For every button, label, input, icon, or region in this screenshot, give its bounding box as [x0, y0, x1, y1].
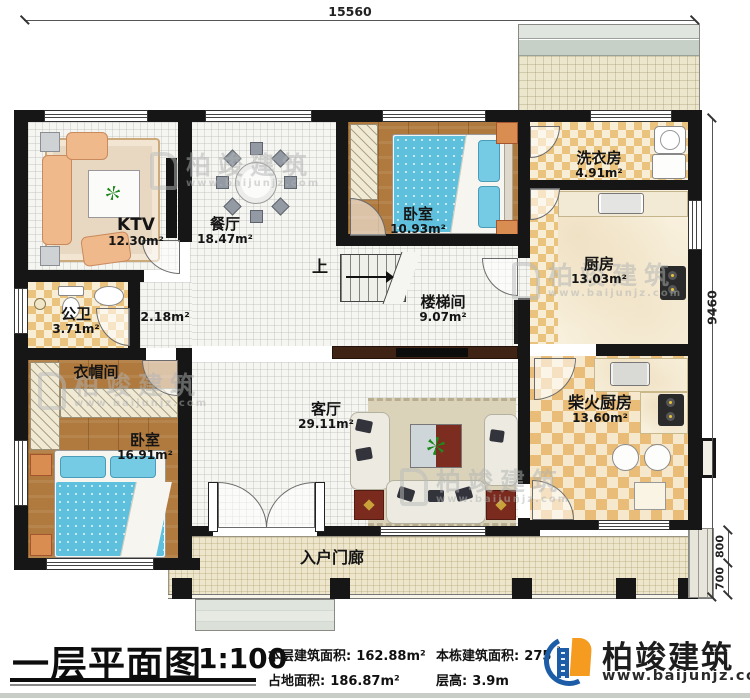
stat-total-area: 本栋建筑面积: 275 ² [436, 645, 560, 664]
bedroom2-nightstand [30, 534, 52, 556]
window-living-bottom [380, 526, 486, 536]
room-label-kitchen: 厨房 13.03m² [558, 256, 640, 286]
room-area: 13.03m² [558, 273, 640, 286]
sofa-pillow [428, 490, 444, 502]
room-area: 9.07m² [402, 311, 484, 324]
terrace-band [519, 25, 699, 39]
toilet-tank [58, 286, 84, 296]
laundry-sink-basin [660, 130, 680, 150]
entrance-door-post [208, 482, 218, 532]
room-area: 18.47m² [185, 233, 265, 246]
window-firewood-bottom [598, 520, 670, 530]
entry-steps [195, 599, 335, 631]
window-laundry-top [590, 110, 672, 122]
living-side-table [354, 490, 384, 520]
dining-chair [250, 142, 263, 155]
room-name: 公卫 [38, 306, 114, 323]
stairs-arrow-head [386, 271, 394, 283]
room-area: 16.91m² [105, 449, 185, 462]
ktv-flower [106, 186, 120, 200]
room-label-laundry: 洗衣房 4.91m² [558, 150, 640, 180]
terrace [518, 24, 700, 112]
wall-living-bottom [317, 526, 380, 536]
dining-table [235, 162, 277, 204]
wall-kitchen-firewood [596, 344, 702, 356]
room-label-ktv: KTV 12.30m² [96, 216, 176, 248]
living-plant [427, 437, 445, 455]
chimney-bump [700, 438, 716, 478]
dining-chair [284, 176, 297, 189]
window-bedroom2-bottom [46, 558, 154, 570]
window-dining-top [205, 110, 312, 122]
bedroom2-pillow [60, 456, 106, 478]
window-bedroom1-top [382, 110, 486, 122]
room-name: 客厅 [286, 401, 366, 418]
stat-value: 162.88m² [356, 649, 425, 664]
wall-bedroom1-left [336, 110, 348, 246]
title-underline [10, 678, 256, 682]
firewood-stool [612, 444, 639, 471]
bedroom1-pillow [478, 140, 500, 182]
room-label-living: 客厅 29.11m² [286, 401, 366, 431]
washing-machine [652, 154, 686, 179]
porch-pillar [616, 578, 636, 599]
wall-ktv-bottom [14, 270, 144, 282]
window-bedroom2-left [14, 440, 28, 506]
stat-label: 本层建筑面积: [268, 649, 351, 664]
porch-pillar [172, 578, 192, 599]
room-name: 入户门廊 [272, 549, 392, 567]
room-label-porch: 入户门廊 [272, 549, 392, 567]
bedroom1-nightstand [496, 122, 518, 144]
wall-bedroom2-top [14, 348, 146, 360]
stove-burner [666, 412, 675, 421]
dimension-top-value: 15560 [310, 4, 390, 19]
room-area: 13.60m² [548, 412, 652, 425]
firewood-stove [658, 394, 684, 426]
room-name: 卧室 [105, 432, 185, 449]
stat-value: 186.87m² [330, 674, 399, 689]
bathroom-sink [94, 286, 124, 306]
stat-floor-height: 层高: 3.9m [436, 670, 509, 689]
bedroom2-nightstand [30, 454, 52, 476]
stairs-arrow-line [346, 276, 386, 278]
dimension-right-value: 9460 [705, 286, 720, 330]
side-table-inlay [495, 499, 506, 510]
living-sofa-right [484, 414, 518, 486]
stat-floor-area: 本层建筑面积: 162.88m² [268, 645, 426, 664]
room-name: 柴火厨房 [548, 394, 652, 412]
room-area: 3.71m² [38, 323, 114, 336]
wall-living-east-stub [518, 518, 530, 530]
sheet-footer-bar [0, 693, 750, 698]
room-area: 2.18m² [130, 310, 200, 324]
bedroom1-wardrobe [350, 124, 378, 200]
room-name: KTV [96, 216, 176, 235]
terrace-band2 [519, 40, 699, 56]
room-label-bathroom: 公卫 3.71m² [38, 306, 114, 336]
floor-plan-sheet: 柏竣建筑 www.baijunjz.com 柏竣建筑 www.baijunjz.… [0, 0, 750, 700]
room-area: 10.93m² [378, 223, 458, 236]
porch-pillar [512, 578, 532, 599]
room-label-cloakroom: 衣帽间 [56, 364, 136, 381]
ktv-sofa-seat [66, 132, 108, 160]
entrance-door-post [315, 482, 325, 532]
room-label-bedroom2: 卧室 16.91m² [105, 432, 185, 462]
room-name: 衣帽间 [56, 364, 136, 381]
stove-burner [668, 271, 677, 280]
firewood-table [634, 482, 666, 510]
kitchen-stove [660, 266, 686, 300]
room-name: 楼梯间 [402, 294, 484, 311]
room-label-hall-area: 2.18m² [130, 310, 200, 324]
stairs-up-label: 上 [308, 258, 332, 276]
room-label-dining: 餐厅 18.47m² [185, 216, 265, 246]
dining-chair [216, 176, 229, 189]
stat-label: 占地面积: [268, 674, 325, 689]
stat-label: 层高: [436, 674, 467, 689]
brand-logo-icon [544, 632, 602, 692]
wall-kitchen-west [518, 298, 530, 352]
cloakroom-wardrobe [60, 388, 178, 418]
window-ktv-top [44, 110, 148, 122]
logo-tower-blue [557, 648, 569, 678]
stat-label: 本栋建筑面积: [436, 649, 519, 664]
ktv-side-table [40, 246, 60, 266]
title-block: 一层平面图 1:100 本层建筑面积: 162.88m² 占地面积: 186.8… [0, 632, 750, 700]
porch-pillar [330, 578, 350, 599]
window-kitchen-right [688, 200, 702, 250]
ktv-sofa [42, 155, 72, 245]
side-steps [688, 528, 714, 598]
stat-land-area: 占地面积: 186.87m² [268, 670, 400, 689]
stat-value: 3.9m [472, 674, 509, 689]
window-bathroom-left [14, 288, 28, 334]
stove-burner [666, 398, 675, 407]
room-label-stair: 楼梯间 9.07m² [402, 294, 484, 324]
ktv-side-table [40, 132, 60, 152]
title-underline-2 [10, 684, 256, 686]
bedroom1-headboard [504, 134, 513, 234]
stove-burner [668, 285, 677, 294]
room-area: 4.91m² [558, 167, 640, 180]
room-label-bedroom1: 卧室 10.93m² [378, 206, 458, 236]
room-area: 12.30m² [96, 235, 176, 248]
room-name: 餐厅 [185, 216, 265, 233]
logo-tower-orange [570, 638, 593, 676]
brand-site: www.baijunjz.com [602, 668, 750, 684]
room-label-firewood: 柴火厨房 13.60m² [548, 394, 652, 425]
wall-bedroom1-right [518, 110, 530, 258]
firewood-sink [610, 362, 650, 386]
logo-swoosh [537, 629, 600, 692]
kitchen-sink [598, 193, 644, 214]
side-table-inlay [363, 499, 374, 510]
wall-living-east [518, 352, 530, 484]
room-name: 洗衣房 [558, 150, 640, 167]
firewood-stool [644, 444, 671, 471]
living-side-table [486, 490, 516, 520]
sofa-pillow [489, 429, 505, 443]
tv [396, 348, 468, 357]
room-name: 卧室 [378, 206, 458, 223]
terrace-floor [519, 56, 699, 111]
dimension-line-top [24, 20, 696, 21]
room-area: 29.11m² [286, 418, 366, 431]
room-name: 厨房 [558, 256, 640, 273]
up-text: 上 [308, 258, 332, 276]
